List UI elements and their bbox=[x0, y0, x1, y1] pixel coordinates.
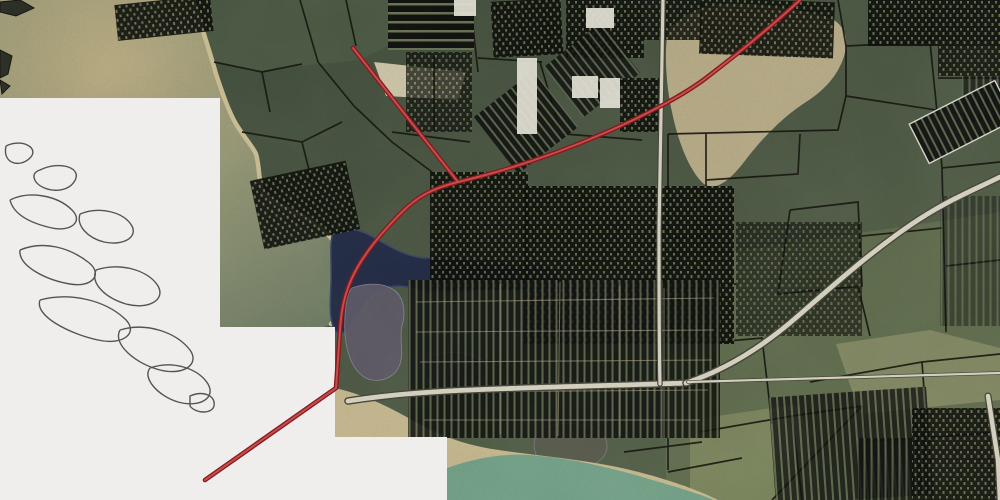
map-viewport[interactable] bbox=[0, 0, 1000, 500]
map-canvas[interactable] bbox=[0, 0, 1000, 500]
